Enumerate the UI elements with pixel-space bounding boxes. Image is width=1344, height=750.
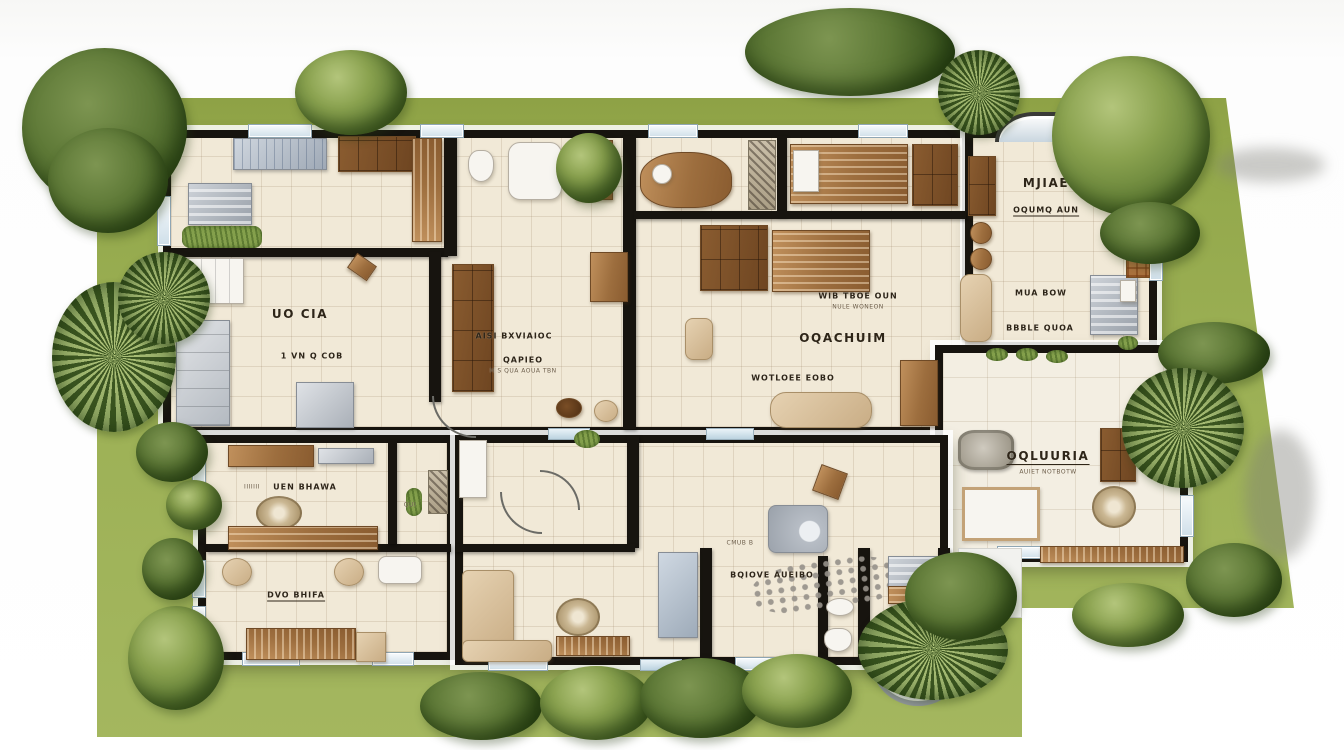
console: [900, 360, 938, 426]
label-master-1: MJIAE: [1023, 176, 1069, 190]
site-plan: UO CIA 1 VN Q COB AISI BXVIAIOC QAPIEO M…: [0, 0, 1344, 750]
label-master-3: MUA BOW: [1015, 289, 1067, 298]
bush-bottom-1: [420, 672, 542, 740]
hall-plant: [574, 430, 600, 448]
indoor-planter: [182, 226, 262, 248]
bed-gray: [188, 183, 252, 225]
ottoman-round: [556, 598, 600, 636]
tree-lobe-topleft: [48, 128, 168, 233]
ground-shadow: [1245, 430, 1315, 560]
patio-lounger: [962, 487, 1040, 541]
family-sofa-bench: [228, 526, 378, 550]
equipment: [768, 505, 828, 553]
round-table-1: [970, 222, 992, 244]
label-closet-2: QAPIEO: [503, 356, 543, 365]
tall-unit: [658, 552, 698, 638]
bush-top-1: [295, 50, 407, 135]
patio-plant-3: [1046, 350, 1068, 363]
wall-great-room-top: [634, 211, 966, 219]
hall-closet: [459, 440, 487, 498]
label-great-main: OQACHUIM: [799, 331, 887, 345]
shelf-hatched: [748, 140, 776, 210]
ground-shadow: [1215, 148, 1325, 182]
armchair: [685, 318, 713, 360]
label-closet-sub: M S QUA AOUA TBN: [489, 368, 556, 375]
label-patio: OQLUURIA: [1007, 449, 1090, 465]
bush-top-2: [556, 133, 622, 203]
patio-plant-2: [1016, 348, 1038, 361]
patio-plant-1: [986, 348, 1008, 361]
pouf-right: [334, 558, 364, 586]
bush-bottomright-2: [1072, 583, 1184, 647]
round-table-2: [970, 248, 992, 270]
bush-bottomright-1: [1186, 543, 1282, 617]
vanity-small: [378, 556, 422, 584]
master-pillow: [1120, 280, 1136, 302]
hedge-top-center: [745, 8, 955, 96]
bush-right-upper: [1100, 202, 1200, 264]
bush-bottomleft-2: [142, 538, 204, 600]
label-patio-sub: AUIET NOTBOTW: [1019, 469, 1076, 476]
sofa-lounge: [770, 392, 872, 428]
label-family: UEN BHAWA: [273, 483, 337, 492]
bush-bottom-2: [540, 666, 652, 740]
side-stool: [356, 632, 386, 662]
family-shelf: [228, 445, 314, 467]
bathtub: [508, 142, 562, 200]
wall-lounge-left: [700, 548, 712, 660]
slat-bench: [246, 628, 356, 660]
wall-hall-bottom: [455, 544, 635, 552]
wc-toilet: [824, 628, 852, 652]
sideboard: [772, 230, 870, 292]
window-top-2: [420, 124, 464, 138]
label-bottom-left: DVO BHIFA: [267, 591, 325, 602]
side-cabinet: [912, 144, 958, 206]
bush-left: [136, 422, 208, 482]
wall-qui-room: [388, 440, 397, 544]
bush-bottom-4: [742, 654, 852, 728]
bush-bottomleft-3: [166, 480, 222, 530]
wall-closet-left: [429, 252, 441, 402]
label-great-small-sub: NULE WONEON: [832, 304, 884, 311]
tv-panel: [318, 448, 374, 464]
corridor-dresser: [590, 252, 628, 302]
wc-sink: [826, 598, 854, 616]
dresser: [233, 138, 327, 170]
wall-hall-right: [627, 435, 639, 548]
pouf-left: [222, 558, 252, 586]
basin: [652, 164, 672, 184]
wicker-chair: [1092, 486, 1136, 528]
window-top-1: [248, 124, 312, 138]
label-qui: QUI: [404, 502, 416, 509]
qui-screen: [428, 470, 448, 514]
sofa-L-horizontal: [462, 640, 552, 662]
window-top-3: [648, 124, 698, 138]
closet-wardrobe: [452, 264, 494, 392]
wardrobe: [338, 136, 416, 172]
label-master-2: OQUMQ AUN: [1013, 206, 1079, 217]
striped-bench: [556, 636, 630, 656]
family-rug: [256, 496, 302, 530]
tall-cabinet: [412, 138, 442, 242]
label-living-2: 1 VN Q COB: [281, 352, 343, 361]
window-top-4: [858, 124, 908, 138]
window-right-3: [1180, 495, 1194, 537]
label-great-bottom: WOTLOEE EOBO: [751, 374, 835, 383]
label-closet-1: AISI BXVIAIOC: [476, 332, 553, 341]
label-great-small: WIB TBOE OUN: [818, 292, 897, 301]
potted-plant: [1118, 336, 1138, 350]
label-family-prefix: IIIIIII: [244, 484, 260, 491]
wall-bath-divider: [777, 136, 787, 216]
tree-shaggy-topright: [1052, 56, 1210, 216]
palm-right: [1122, 368, 1244, 488]
toilet: [468, 150, 494, 182]
deck-boards: [1040, 546, 1184, 563]
palm-left-upper: [118, 252, 210, 344]
door-threshold-1: [706, 428, 754, 440]
label-lounge-small: CMUB B: [727, 540, 754, 547]
wall-bedroom-bottom: [171, 248, 448, 257]
label-master-4: BBBLE QUOA: [1006, 324, 1074, 333]
palm-top-right: [938, 50, 1020, 135]
label-living-1: UO CIA: [272, 307, 328, 321]
pillow: [793, 150, 819, 192]
vase: [594, 400, 618, 422]
wall-bedroom-right: [444, 136, 457, 256]
bush-bottom-center-right: [905, 552, 1017, 640]
bush-bottomleft-1: [128, 606, 224, 710]
master-wardrobe: [968, 156, 996, 216]
planter-pot: [556, 398, 582, 418]
chaise: [960, 274, 992, 342]
table-gray: [296, 382, 354, 428]
double-dresser: [700, 225, 768, 291]
label-lounge: BQIOVE AUEIBO: [730, 571, 814, 580]
